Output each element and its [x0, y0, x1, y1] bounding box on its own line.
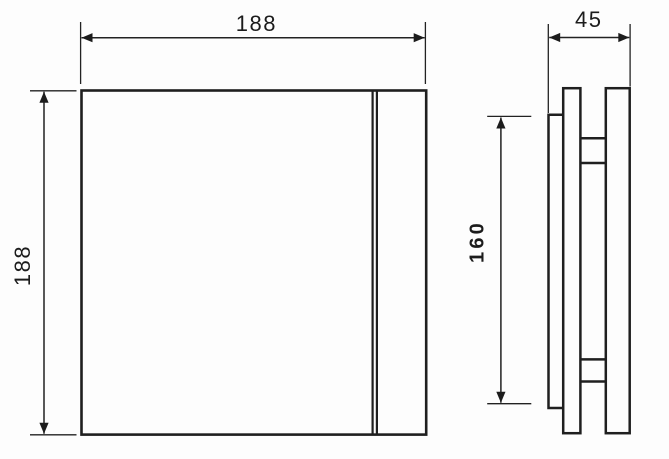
svg-text:45: 45	[575, 7, 602, 32]
svg-text:188: 188	[10, 245, 35, 286]
svg-text:188: 188	[236, 11, 277, 36]
svg-text:160: 160	[467, 220, 489, 263]
